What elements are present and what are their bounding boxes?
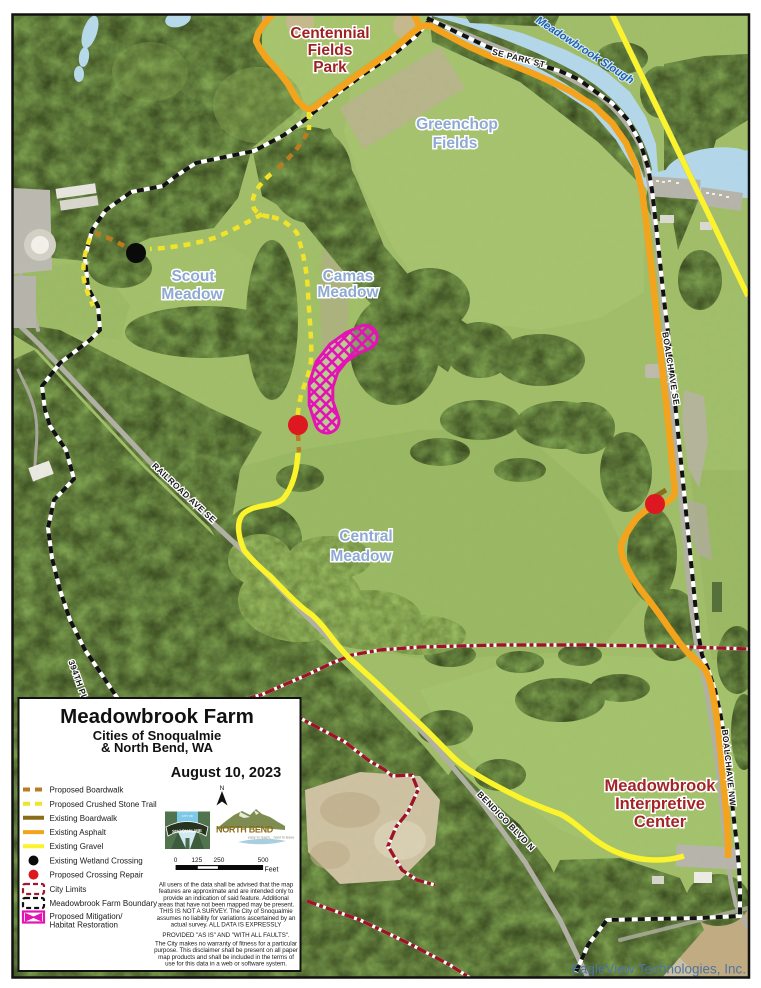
svg-text:Habitat Restoration: Habitat Restoration <box>50 921 118 930</box>
svg-text:Existing Gravel: Existing Gravel <box>50 842 104 851</box>
svg-text:0: 0 <box>174 857 178 864</box>
svg-text:City Limits: City Limits <box>50 885 87 894</box>
svg-text:Meadow: Meadow <box>317 284 379 301</box>
svg-text:Center: Center <box>634 813 687 831</box>
svg-text:Feet: Feet <box>265 867 279 874</box>
svg-text:SNOQUALMIE: SNOQUALMIE <box>172 828 202 834</box>
svg-text:Proposed Crushed Stone Trail: Proposed Crushed Stone Trail <box>50 800 157 809</box>
svg-text:easy to reach... hard to leave: easy to reach... hard to leave <box>248 836 294 840</box>
svg-text:NORTH BEND: NORTH BEND <box>216 825 274 835</box>
svg-text:Meadowbrook Farm: Meadowbrook Farm <box>60 705 254 728</box>
svg-text:Fields: Fields <box>308 42 353 59</box>
svg-text:Proposed Boardwalk: Proposed Boardwalk <box>50 786 125 795</box>
svg-text:EagleView Technologies, Inc.: EagleView Technologies, Inc. <box>571 962 746 977</box>
svg-text:Meadowbrook Farm Boundary: Meadowbrook Farm Boundary <box>50 899 158 908</box>
svg-text:Camas: Camas <box>323 268 374 285</box>
svg-text:Meadow: Meadow <box>161 286 223 303</box>
svg-text:CITY OF: CITY OF <box>182 814 194 818</box>
svg-text:Meadow: Meadow <box>330 548 392 565</box>
svg-text:N: N <box>220 785 225 792</box>
svg-text:Fields: Fields <box>433 135 478 152</box>
svg-text:Existing Boardwalk: Existing Boardwalk <box>50 814 119 823</box>
svg-text:& North Bend, WA: & North Bend, WA <box>101 740 214 755</box>
svg-text:125: 125 <box>191 857 202 864</box>
svg-text:actual survey. ALL DATA IS EXP: actual survey. ALL DATA IS EXPRESSLY <box>171 922 282 929</box>
svg-text:Park: Park <box>313 59 347 76</box>
svg-text:Greenchop: Greenchop <box>416 116 498 133</box>
svg-text:Interpretive: Interpretive <box>615 795 705 813</box>
svg-text:use for this data in a web or: use for this data in a web or software s… <box>165 961 287 968</box>
svg-text:PROVIDED "AS IS" AND "WITH ALL: PROVIDED "AS IS" AND "WITH ALL FAULTS". <box>162 932 290 939</box>
svg-text:Meadowbrook: Meadowbrook <box>605 777 717 795</box>
svg-text:Existing Wetland Crossing: Existing Wetland Crossing <box>50 857 143 866</box>
svg-text:Scout: Scout <box>171 268 214 285</box>
svg-text:Central: Central <box>339 528 392 545</box>
svg-text:250: 250 <box>213 857 224 864</box>
svg-text:Proposed Crossing Repair: Proposed Crossing Repair <box>50 871 144 880</box>
svg-text:Existing Asphalt: Existing Asphalt <box>50 828 107 837</box>
svg-text:Centennial: Centennial <box>290 25 369 42</box>
svg-text:August 10, 2023: August 10, 2023 <box>171 765 281 781</box>
svg-text:500: 500 <box>258 857 269 864</box>
